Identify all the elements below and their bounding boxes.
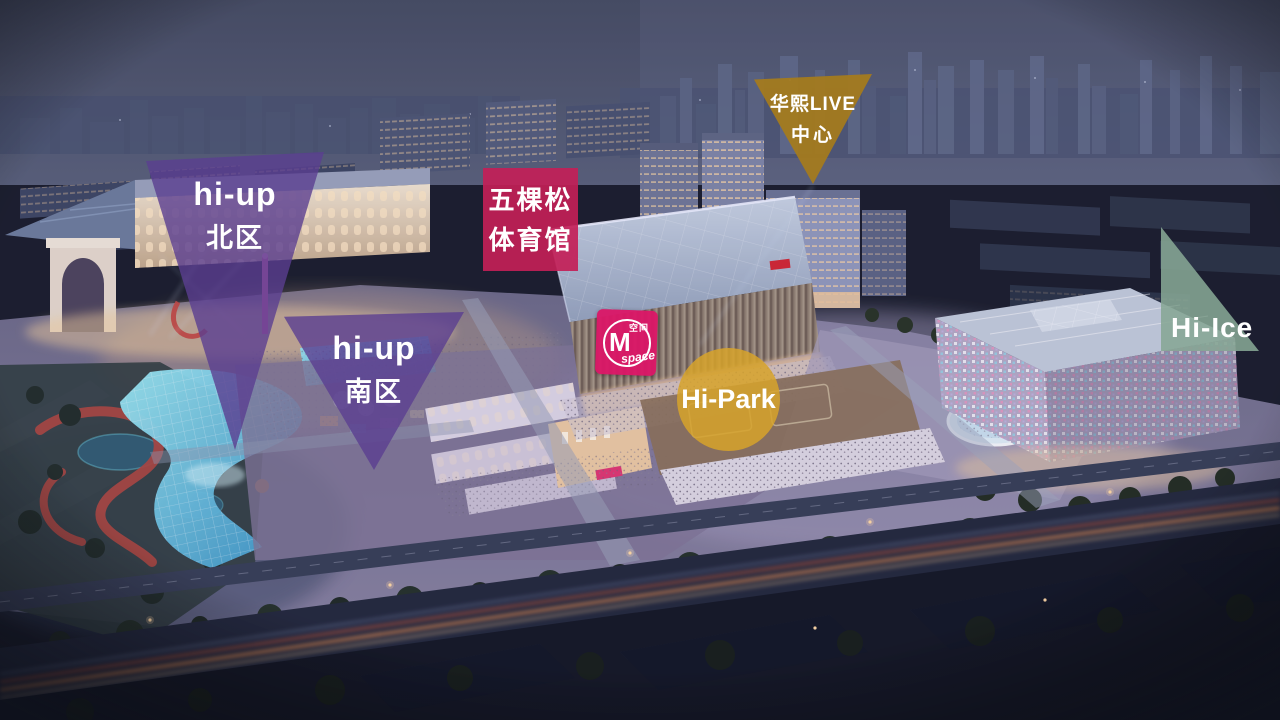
hi-park-label: Hi-Park [681,384,776,415]
hiup-south-brand: hi-up [332,330,415,367]
hi-ice-label: Hi-Ice [1171,312,1253,344]
stadium-label-line2: 体育馆 [488,227,572,253]
huaxi-live-wukesong-aerial-rendering: hi-up 北区 hi-up 南区 五棵松 体育馆 华熙LIVE 中心 M 空间… [0,0,1280,720]
stadium-label-text: 五棵松 体育馆 [483,168,578,271]
huaxi-center-line2: 中心 [791,120,835,147]
marker-hi-park: Hi-Park [677,348,780,451]
marker-huaxi-live-center: 华熙LIVE 中心 [754,74,872,184]
stadium-label-line1: 五棵松 [488,187,572,213]
hiup-south-area: 南区 [345,370,403,409]
marker-m-space: M 空间 space [596,310,657,375]
m-space-cn-label: 空间 [629,321,649,334]
marker-hiup-south: hi-up 南区 [284,312,464,470]
hiup-south-text: hi-up 南区 [284,312,464,488]
huaxi-center-text: 华熙LIVE 中心 [754,74,872,199]
hiup-north-brand: hi-up [193,176,276,213]
hiup-north-area: 北区 [206,216,264,255]
marker-wukesong-stadium: 五棵松 体育馆 [483,168,578,271]
huaxi-center-line1: 华熙LIVE [770,89,856,116]
